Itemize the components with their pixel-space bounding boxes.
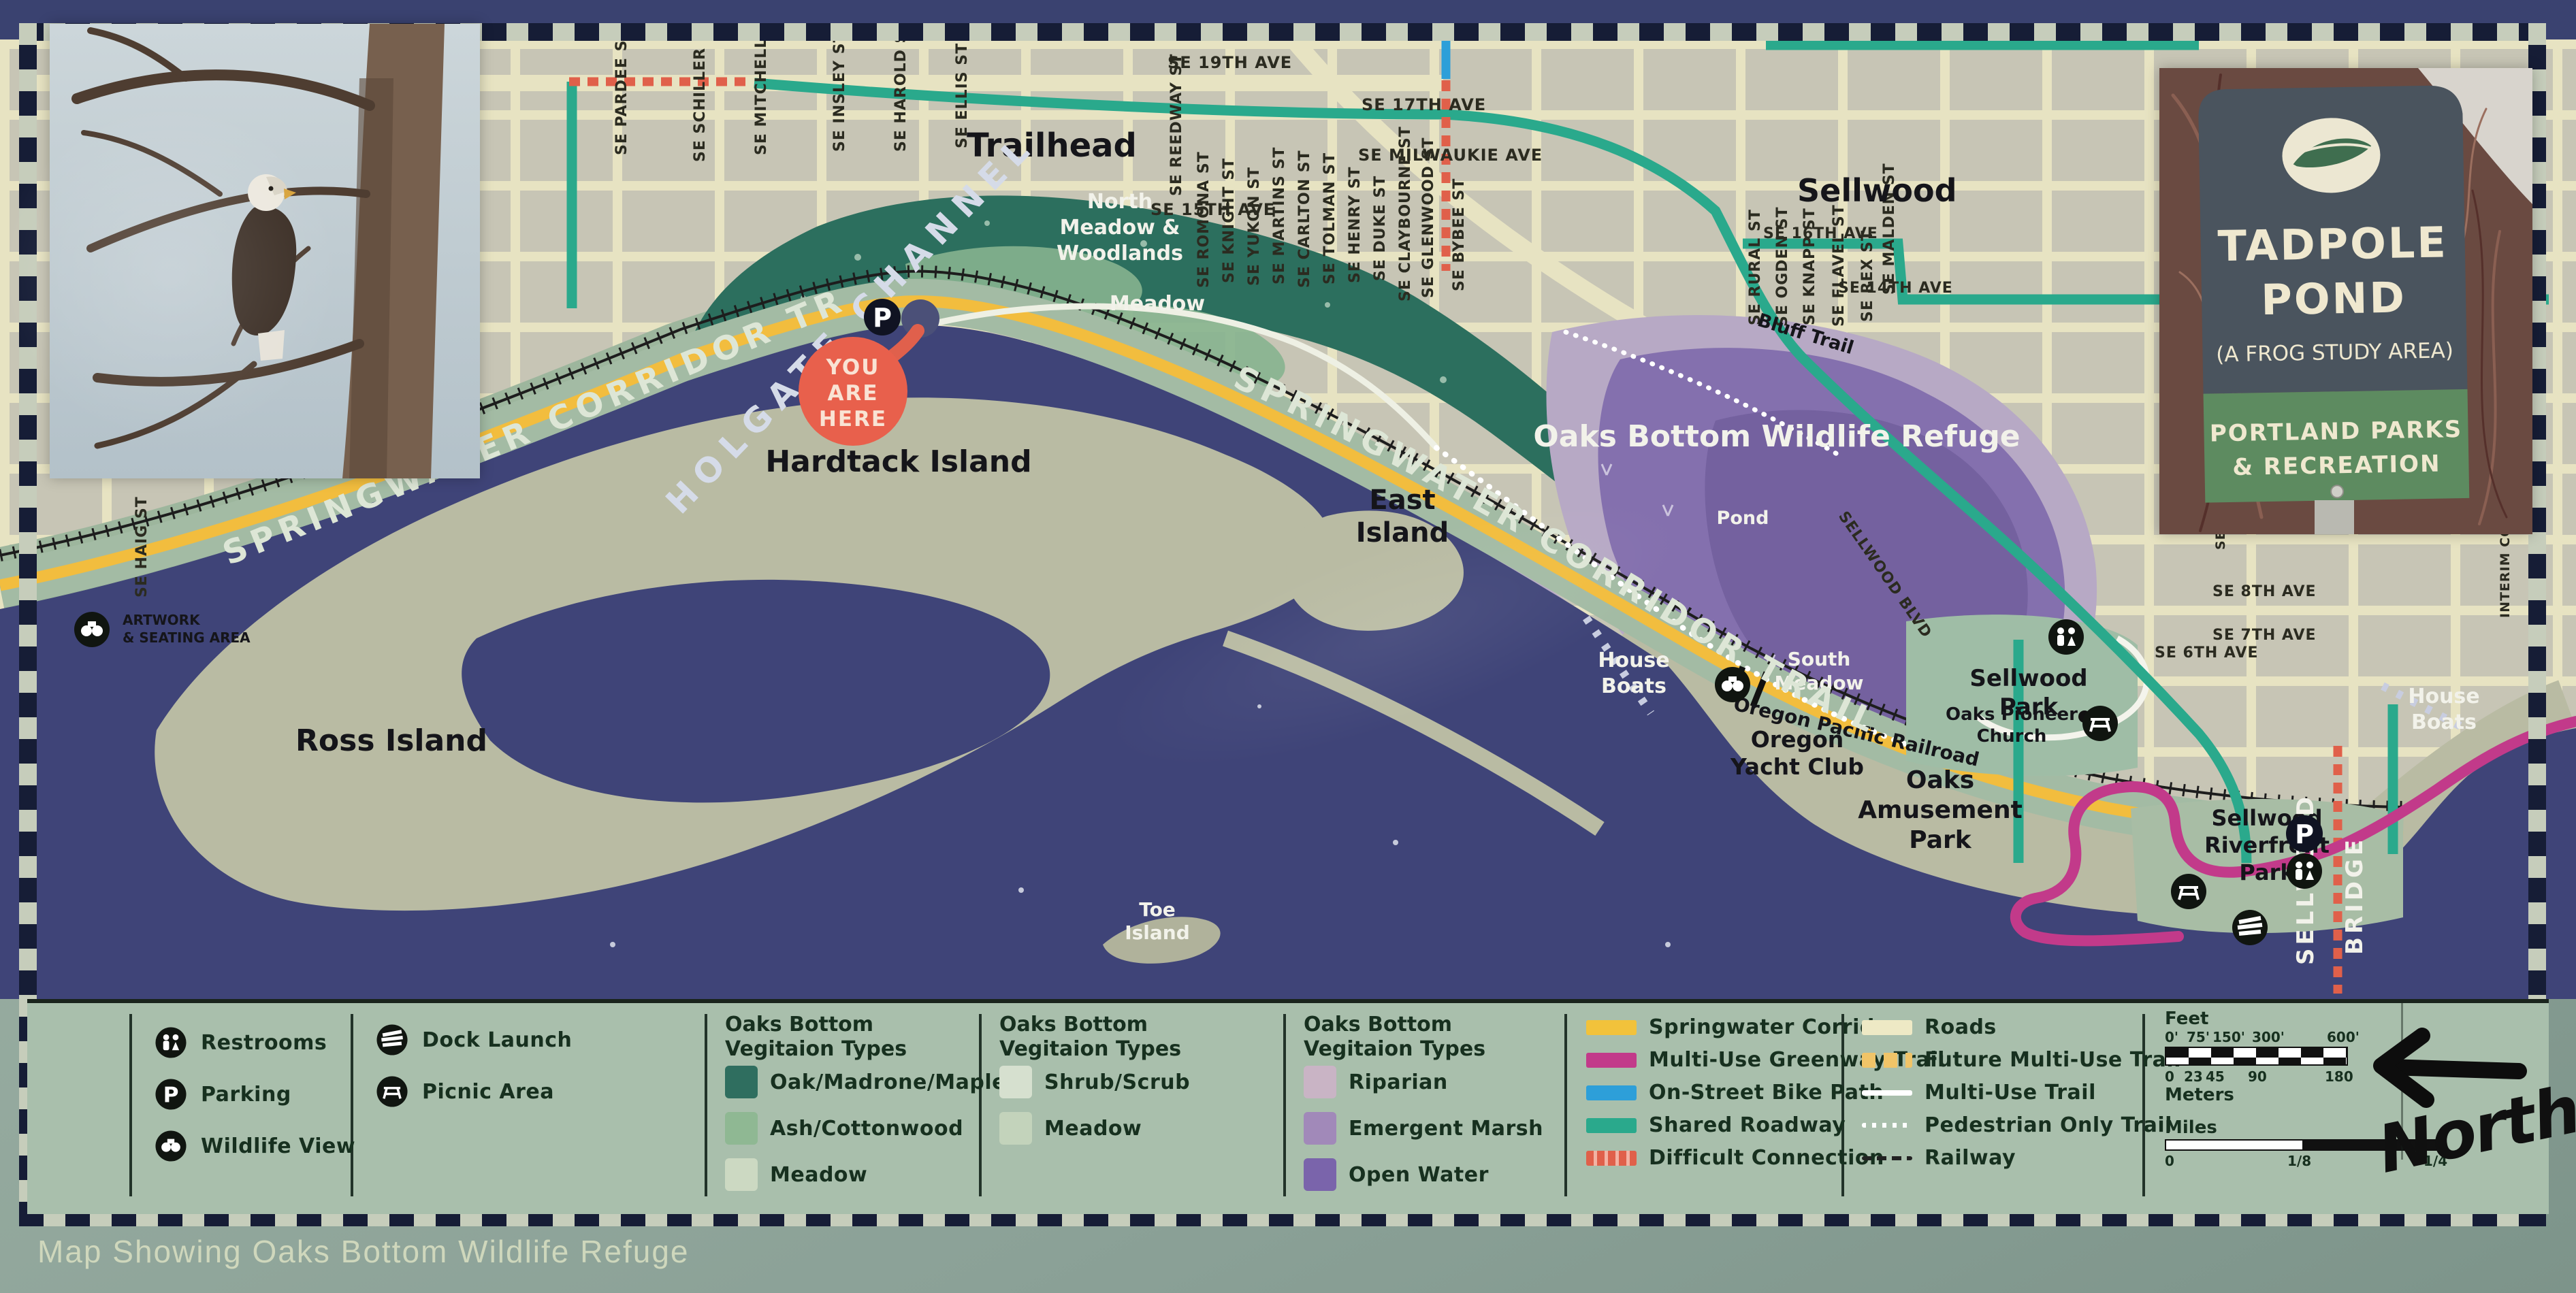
label-east-island: Island <box>1356 517 1449 549</box>
legend-label: Roads <box>1925 1015 1997 1039</box>
legend-label: Dock Launch <box>422 1028 572 1052</box>
street-label: SE INSLEY ST <box>831 39 848 152</box>
color-swatch <box>1304 1158 1336 1191</box>
street-label: SE YUKON ST <box>1246 167 1263 286</box>
color-swatch <box>999 1112 1032 1145</box>
legend-restrooms: Restrooms <box>153 1025 327 1060</box>
legend-label: Open Water <box>1349 1163 1489 1187</box>
legend-label: Riparian <box>1349 1070 1448 1094</box>
legend-veg-meadow2: Meadow <box>999 1112 1142 1145</box>
legend-divider <box>129 1014 132 1196</box>
street-label: SE SCHILLER ST <box>692 39 709 162</box>
color-swatch <box>999 1066 1032 1098</box>
you-are-here-text: YOU <box>826 355 880 380</box>
street-label: SE TOLMAN ST <box>1321 152 1338 284</box>
label-refuge: Oaks Bottom Wildlife Refuge <box>1533 419 2020 454</box>
veg-header-line: Vegitaion Types <box>1304 1037 1485 1062</box>
legend-divider <box>2142 1014 2145 1196</box>
label-toe-island: Island <box>1125 921 1190 944</box>
label-amusement-park: Park <box>1909 826 1971 854</box>
trail-swatch <box>1586 1085 1637 1100</box>
veg-header-line: Vegitaion Types <box>725 1037 907 1062</box>
street-label: SE REEDWAY ST <box>1168 54 1185 196</box>
label-toe-island: Toe <box>1139 898 1176 921</box>
sign-screw <box>2331 485 2343 497</box>
label-riverfront-park: Park <box>2239 860 2295 885</box>
legend-label: Future Multi-Use Trail <box>1925 1048 2181 1072</box>
legend-label: Meadow <box>770 1163 867 1187</box>
street-label: SE KNAPP ST <box>1801 208 1818 325</box>
street-label: SE 8TH AVE <box>2212 583 2317 600</box>
label-amusement-park: Oaks <box>1906 766 1974 794</box>
legend-label: Emergent Marsh <box>1349 1117 1543 1141</box>
restrooms-icon <box>2287 853 2322 889</box>
color-swatch <box>1304 1066 1336 1098</box>
scale-tick: 23 <box>2184 1068 2203 1085</box>
label-north-meadow: Woodlands <box>1057 242 1183 265</box>
legend-divider <box>1283 1014 1286 1196</box>
label-north-meadow: Meadow & <box>1060 216 1180 240</box>
label-sellwood: Sellwood <box>1797 172 1957 209</box>
label-sellwood-bridge: BRIDGE <box>2341 836 2368 955</box>
eagle-photo <box>50 24 480 478</box>
label-artwork-seating: & SEATING AREA <box>123 629 251 646</box>
legend-label: Meadow <box>1044 1117 1142 1141</box>
legend-divider <box>979 1014 982 1196</box>
legend-label: Shared Roadway <box>1649 1113 1846 1137</box>
legend-dock-launch: Dock Launch <box>374 1022 572 1058</box>
label-sellwood-park: Sellwood <box>1969 665 2087 692</box>
label-amusement-park: Amusement <box>1858 796 2023 824</box>
wildlife-view-icon <box>74 612 110 647</box>
tadpole-sign-photo: TADPOLE POND (A FROG STUDY AREA) PORTLAN… <box>2159 68 2532 534</box>
legend-label: Restrooms <box>201 1031 327 1055</box>
legend-veg-shrub: Shrub/Scrub <box>999 1066 1190 1098</box>
scale-tick: 45 <box>2206 1068 2225 1085</box>
street-label: SE 19TH AVE <box>1168 53 1292 72</box>
picnic-area-icon <box>2082 706 2118 741</box>
legend-pedestrian: Pedestrian Only Trail <box>1862 1113 2172 1137</box>
tadpole-title: TADPOLE <box>2217 217 2448 271</box>
legend-label: Parking <box>201 1083 291 1107</box>
label-yacht-club: Yacht Club <box>1730 753 1864 780</box>
scale-miles-label: Miles <box>2165 1117 2217 1138</box>
legend-bike-path: On-Street Bike Path <box>1586 1081 1884 1104</box>
tadpole-agency: PORTLAND PARKS <box>2210 416 2463 447</box>
veg-header-line: Vegitaion Types <box>999 1037 1181 1062</box>
you-are-here-text: ARE <box>827 381 878 406</box>
scale-tick: 1/8 <box>2287 1153 2311 1169</box>
veg-header: Oaks Bottom Vegitaion Types <box>1304 1013 1485 1062</box>
street-label: SE HENRY ST <box>1347 166 1364 283</box>
scale-tick: 0 <box>2165 1153 2174 1169</box>
legend-springwater: Springwater Corridor <box>1586 1015 1899 1039</box>
scale-tick: 0 <box>2165 1068 2174 1085</box>
photo-caption: Map Showing Oaks Bottom Wildlife Refuge <box>37 1233 690 1270</box>
label-hardtack-island: Hardtack Island <box>765 444 1031 479</box>
park-sign-photo: SE HAIG ST SE PARDEE ST SE SCHILLER ST S… <box>0 0 2576 1293</box>
trail-swatch <box>1586 1118 1637 1133</box>
label-pioneer-church: Church <box>1977 726 2047 747</box>
picnic-area-icon <box>374 1074 410 1109</box>
legend-label: Shrub/Scrub <box>1044 1070 1190 1094</box>
street-label: SE 17TH AVE <box>1362 95 1486 114</box>
tadpole-sign-panel: TADPOLE POND (A FROG STUDY AREA) PORTLAN… <box>2198 85 2470 503</box>
street-label: SE OGDEN ST <box>1774 206 1791 327</box>
label-north-meadow: North <box>1087 190 1153 214</box>
map-legend: Restrooms P Parking Wildlife View Dock L… <box>27 999 2549 1214</box>
trail-swatch <box>1586 1151 1637 1166</box>
street-label: SE REX ST <box>1859 230 1876 322</box>
label-pond: Pond <box>1717 508 1769 529</box>
wildlife-view-icon <box>1715 667 1750 702</box>
color-swatch <box>725 1112 758 1145</box>
legend-future-trail: Future Multi-Use Trail <box>1862 1048 2181 1072</box>
legend-label: Multi-Use Trail <box>1925 1081 2096 1104</box>
veg-header-line: Oaks Bottom <box>725 1013 907 1037</box>
parking-glyph: P <box>2295 819 2314 849</box>
scale-tick: 90 <box>2248 1068 2267 1085</box>
legend-veg-water: Open Water <box>1304 1158 1489 1191</box>
scale-feet-label: Feet <box>2165 1009 2208 1029</box>
veg-header: Oaks Bottom Vegitaion Types <box>999 1013 1181 1062</box>
street-label: SE 14TH AVE <box>1838 280 1953 297</box>
wildlife-view-icon <box>153 1128 189 1164</box>
legend-label: Ash/Cottonwood <box>770 1117 963 1141</box>
legend-difficult: Difficult Connection <box>1586 1146 1884 1170</box>
scale-tick: 150' <box>2212 1029 2245 1045</box>
label-house-boats: Boats <box>1601 674 1667 698</box>
street-label: SE 7TH AVE <box>2212 627 2317 644</box>
veg-header: Oaks Bottom Vegitaion Types <box>725 1013 907 1062</box>
restrooms-icon <box>153 1025 189 1060</box>
legend-shared-roadway: Shared Roadway <box>1586 1113 1846 1137</box>
legend-parking: P Parking <box>153 1077 291 1112</box>
street-label: SE 6TH AVE <box>2155 644 2259 661</box>
street-label: SE BYBEE ST <box>1451 178 1468 291</box>
sign-post <box>2315 500 2354 534</box>
label-ross-island: Ross Island <box>295 723 487 758</box>
veg-header-line: Oaks Bottom <box>1304 1013 1485 1037</box>
legend-label: Wildlife View <box>201 1134 355 1158</box>
tadpole-title: POND <box>2261 272 2407 325</box>
street-label: SE DUKE ST <box>1372 176 1389 281</box>
scale-tick: 0' <box>2165 1029 2178 1045</box>
label-pioneer-church: Oaks Pioneer <box>1946 704 2078 725</box>
veg-header-line: Oaks Bottom <box>999 1013 1181 1037</box>
parking-glyph: P <box>873 303 892 333</box>
legend-railway: Railway <box>1862 1146 2016 1170</box>
legend-roads: Roads <box>1862 1015 1997 1039</box>
svg-text:P: P <box>163 1083 179 1107</box>
street-label: SE MARTINS ST <box>1271 147 1288 284</box>
color-swatch <box>1304 1112 1336 1145</box>
legend-label: Oak/Madrone/Maple <box>770 1070 1006 1094</box>
tadpole-agency: & RECREATION <box>2232 451 2441 481</box>
legend-divider <box>1564 1014 1567 1196</box>
street-label: SE HAIG ST <box>133 496 150 598</box>
street-label: SE MILWAUKIE AVE <box>1358 146 1543 165</box>
trail-swatch <box>1586 1020 1637 1035</box>
scale-bar-feet2 <box>2165 1058 2348 1066</box>
color-swatch <box>725 1158 758 1191</box>
restrooms-icon <box>2048 619 2084 655</box>
legend-divider <box>705 1014 707 1196</box>
legend-divider <box>351 1014 353 1196</box>
route-swatch <box>1862 1090 1912 1096</box>
dock-launch-icon <box>374 1022 410 1058</box>
street-label: SE GLENWOOD ST <box>1420 137 1437 299</box>
label-house-boats: House <box>2408 685 2479 708</box>
scale-tick: 75' <box>2187 1029 2210 1045</box>
street-label: SE CARLTON ST <box>1296 150 1313 288</box>
tadpole-subtitle: (A FROG STUDY AREA) <box>2216 338 2453 367</box>
label-house-boats: Boats <box>2411 710 2477 734</box>
legend-label: Railway <box>1925 1146 2016 1170</box>
street-label: SE KNIGHT ST <box>1221 158 1238 283</box>
street-label: SE MITCHELL ST <box>753 39 770 155</box>
color-swatch <box>725 1066 758 1098</box>
legend-label: Difficult Connection <box>1649 1146 1884 1170</box>
scale-meters-label: Meters <box>2165 1085 2234 1105</box>
street-label: SE FLAVEL ST <box>1831 204 1848 327</box>
legend-multi-use: Multi-Use Trail <box>1862 1081 2096 1104</box>
legend-picnic-area: Picnic Area <box>374 1074 554 1109</box>
route-swatch <box>1862 1123 1912 1128</box>
route-swatch <box>1862 1020 1912 1035</box>
label-meadow: Meadow <box>1110 292 1205 316</box>
legend-veg-meadow: Meadow <box>725 1158 867 1191</box>
picnic-area-icon <box>2171 874 2206 909</box>
label-house-boats: House <box>1598 649 1669 672</box>
legend-veg-ash: Ash/Cottonwood <box>725 1112 963 1145</box>
you-are-here-text: HERE <box>819 407 887 431</box>
label-artwork-seating: ARTWORK <box>123 612 201 628</box>
legend-wildlife-view: Wildlife View <box>153 1128 355 1164</box>
legend-veg-oak: Oak/Madrone/Maple <box>725 1066 1006 1098</box>
legend-label: Picnic Area <box>422 1080 554 1104</box>
parking-icon: P <box>153 1077 189 1112</box>
trail-swatch <box>1586 1053 1637 1068</box>
legend-veg-riparian: Riparian <box>1304 1066 1448 1098</box>
street-label: SE ROMONA ST <box>1195 151 1212 288</box>
route-swatch <box>1862 1053 1912 1068</box>
street-label: SE CLAYBOURNE ST <box>1397 126 1414 301</box>
street-label: SE HAROLD ST <box>892 39 909 152</box>
street-label: SE RURAL ST <box>1747 209 1764 325</box>
street-label: SE PARDEE ST <box>613 39 630 155</box>
legend-veg-marsh: Emergent Marsh <box>1304 1112 1543 1145</box>
route-swatch <box>1862 1156 1912 1160</box>
dock-launch-icon <box>2232 910 2268 945</box>
legend-label: On-Street Bike Path <box>1649 1081 1884 1104</box>
scale-tick: 300' <box>2252 1029 2285 1045</box>
legend-label: Pedestrian Only Trail <box>1925 1113 2172 1137</box>
